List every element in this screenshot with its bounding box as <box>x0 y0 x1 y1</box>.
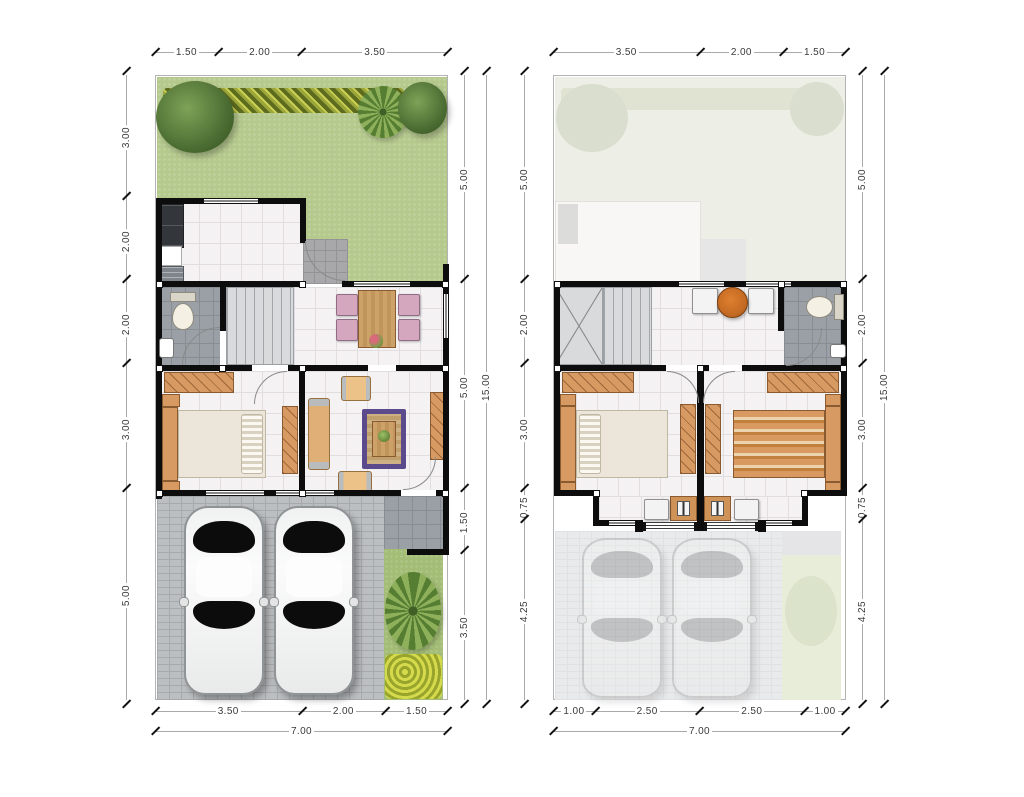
dim-segment: 7.00 <box>553 723 846 739</box>
dim-segment: 5.00 <box>456 75 472 283</box>
column-marker <box>697 365 704 372</box>
wall <box>264 490 276 496</box>
dim-tick <box>460 66 469 75</box>
sofa-long <box>308 398 330 470</box>
dim-tick <box>460 700 469 709</box>
dim-segment: 5.00 <box>456 283 472 491</box>
dim-label: 3.00 <box>857 417 868 442</box>
dim-segment: 3.50 <box>456 554 472 700</box>
column-marker <box>593 490 600 497</box>
bed <box>576 410 668 478</box>
ghost-palm <box>785 576 837 646</box>
wall <box>407 549 449 555</box>
dim-segment: 3.00 <box>854 367 870 492</box>
dim-segment: 2.00 <box>118 200 134 283</box>
wardrobe <box>164 372 234 393</box>
dim-segment: 3.00 <box>516 367 532 492</box>
ghost-car-icon <box>582 538 662 698</box>
ghost-counter <box>558 204 578 244</box>
staircase <box>603 287 652 365</box>
car-mirror <box>179 597 189 608</box>
dim-segment: 5.00 <box>516 75 532 283</box>
desk-chair <box>644 499 669 520</box>
window <box>204 198 258 204</box>
column-marker <box>156 365 163 372</box>
nightstand <box>560 394 576 406</box>
dim-label: 1.50 <box>802 47 827 58</box>
side-porch-tile <box>384 496 443 549</box>
dim-label: 1.00 <box>813 706 838 717</box>
wardrobe <box>767 372 839 393</box>
window <box>766 520 792 526</box>
dim-label: 3.00 <box>519 417 530 442</box>
toilet-icon <box>170 292 196 330</box>
dim-segment: 3.50 <box>301 44 448 60</box>
wall <box>342 281 354 287</box>
armchair <box>341 376 371 401</box>
bed-pillow <box>241 414 263 474</box>
toilet-icon <box>806 294 844 320</box>
ground-bottom-dim-row: 3.50 2.00 1.50 <box>155 703 448 719</box>
toilet-tank <box>834 294 844 320</box>
ghost-porch-tile <box>782 531 841 555</box>
upper-bottom-total-row: 7.00 <box>553 723 846 739</box>
dim-segment: 2.00 <box>854 283 870 366</box>
balcony-post <box>758 520 766 532</box>
dim-tick <box>880 700 889 709</box>
dim-segment: 1.00 <box>553 703 595 719</box>
sliding-glass-door <box>206 490 264 496</box>
dim-segment: 1.50 <box>385 703 448 719</box>
wall <box>697 365 704 531</box>
dresser <box>680 404 696 474</box>
dim-segment: 2.00 <box>516 283 532 366</box>
nightstand <box>825 394 841 406</box>
column-marker <box>554 281 561 288</box>
dim-label: 3.00 <box>121 417 132 442</box>
dim-label: 2.00 <box>121 229 132 254</box>
bed-headboard <box>162 407 178 481</box>
dim-segment: 1.00 <box>804 703 846 719</box>
dim-segment: 3.00 <box>118 367 134 492</box>
dim-tick <box>122 66 131 75</box>
column-marker <box>840 365 847 372</box>
wall <box>778 287 784 331</box>
dim-tick <box>482 700 491 709</box>
dim-label: 2.50 <box>739 706 764 717</box>
dim-segment: 2.00 <box>700 44 784 60</box>
dim-label: 4.25 <box>519 599 530 624</box>
bed-pillow <box>579 414 601 474</box>
wall <box>554 365 666 371</box>
ghost-porch <box>701 239 746 284</box>
sitting-chair <box>748 288 774 314</box>
dim-segment: 5.00 <box>118 492 134 700</box>
ghost-tree <box>556 84 628 152</box>
wall <box>792 520 808 526</box>
upper-floor-plan <box>553 75 846 700</box>
dim-label: 2.00 <box>121 312 132 337</box>
bed-headboard <box>825 406 841 482</box>
dining-chair <box>336 319 358 341</box>
dim-label: 4.25 <box>857 599 868 624</box>
wall <box>742 365 847 371</box>
dim-tick <box>443 726 452 735</box>
dim-label: 2.00 <box>247 47 272 58</box>
bed-headboard <box>560 406 576 482</box>
sink-icon <box>830 344 846 358</box>
dim-label: 3.50 <box>614 47 639 58</box>
dim-tick <box>520 66 529 75</box>
dim-tick <box>549 47 558 56</box>
dim-segment: 2.50 <box>699 703 804 719</box>
round-table <box>717 287 748 318</box>
sink-icon <box>159 338 174 358</box>
column-marker <box>299 365 306 372</box>
dim-label: 1.50 <box>459 510 470 535</box>
dim-tick <box>443 706 452 715</box>
balcony-railing <box>643 522 697 531</box>
dim-segment: 7.00 <box>155 723 448 739</box>
toilet-bowl <box>172 303 194 330</box>
kitchen-sink-icon <box>160 246 182 266</box>
column-marker <box>442 281 449 288</box>
wall <box>156 198 204 204</box>
wall <box>220 287 226 331</box>
bed <box>733 410 825 478</box>
dim-label: 5.00 <box>459 375 470 400</box>
dim-label: 5.00 <box>121 583 132 608</box>
upper-top-dim-row: 3.50 2.00 1.50 <box>553 44 846 60</box>
dim-segment: 15.00 <box>478 75 494 700</box>
window <box>443 294 449 338</box>
window <box>354 281 410 287</box>
dim-label: 7.00 <box>289 726 314 737</box>
dining-chair <box>398 294 420 316</box>
wall <box>299 365 305 496</box>
wall <box>334 490 401 496</box>
desk-chair <box>734 499 759 520</box>
car-rear-glass <box>193 521 255 553</box>
wall <box>554 281 560 496</box>
toilet-bowl <box>806 296 833 318</box>
dim-label: 2.00 <box>519 312 530 337</box>
dim-tick <box>549 726 558 735</box>
ground-top-dim-row: 1.50 2.00 3.50 <box>155 44 448 60</box>
wall <box>805 490 847 496</box>
column-marker <box>299 490 306 497</box>
dim-label: 3.50 <box>362 47 387 58</box>
bed <box>178 410 266 478</box>
dim-tick <box>880 66 889 75</box>
wall <box>554 490 596 496</box>
dim-segment: 2.00 <box>218 44 302 60</box>
shrub-icon <box>385 654 442 699</box>
column-marker <box>219 365 226 372</box>
dim-tick <box>858 66 867 75</box>
dresser <box>282 406 298 474</box>
wall <box>724 281 746 287</box>
dim-segment: 3.50 <box>155 703 302 719</box>
palm-tree-icon <box>385 572 441 650</box>
car-mirror <box>349 597 359 608</box>
dim-segment: 4.25 <box>516 523 532 700</box>
dim-tick <box>841 47 850 56</box>
wall <box>554 281 679 287</box>
dining-chair <box>336 294 358 316</box>
dim-label: 5.00 <box>857 167 868 192</box>
column-marker <box>442 365 449 372</box>
dim-label: 2.50 <box>635 706 660 717</box>
wall <box>156 281 306 287</box>
dim-label: 2.00 <box>857 312 868 337</box>
column-marker <box>299 281 306 288</box>
dim-label: 2.00 <box>331 706 356 717</box>
dresser <box>705 404 721 474</box>
sitting-chair <box>692 288 718 314</box>
wall <box>300 198 306 243</box>
wall <box>443 496 449 555</box>
staircase <box>226 287 294 365</box>
dim-tick <box>122 700 131 709</box>
dim-label: 3.50 <box>216 706 241 717</box>
ground-right-dim-col: 5.00 5.00 1.50 3.50 <box>456 75 472 700</box>
dim-segment: 2.50 <box>595 703 700 719</box>
car-mirror <box>269 597 279 608</box>
car-roof <box>196 557 252 597</box>
column-marker <box>442 490 449 497</box>
dim-segment: 3.50 <box>553 44 700 60</box>
ghost-car-icon <box>672 538 752 698</box>
toilet-tank <box>170 292 196 302</box>
dim-label: 3.00 <box>121 125 132 150</box>
dim-tick <box>151 706 160 715</box>
car-mirror <box>259 597 269 608</box>
desk <box>670 496 697 521</box>
dim-tick <box>520 700 529 709</box>
ground-bottom-total-row: 7.00 <box>155 723 448 739</box>
ground-right-total-col: 15.00 <box>478 75 494 700</box>
dim-label: 1.50 <box>404 706 429 717</box>
dim-segment: 2.00 <box>302 703 386 719</box>
dim-tick <box>841 726 850 735</box>
dim-label: 7.00 <box>687 726 712 737</box>
dim-tick <box>151 726 160 735</box>
dim-label: 15.00 <box>879 372 890 403</box>
window <box>609 520 635 526</box>
upper-right-dim-col: 5.00 2.00 3.00 0.75 4.25 <box>854 75 870 700</box>
dim-label: 5.00 <box>459 167 470 192</box>
dining-chair <box>398 319 420 341</box>
balcony-railing <box>704 522 758 531</box>
ground-left-dim-col: 3.00 2.00 2.00 3.00 5.00 <box>118 75 134 700</box>
window <box>679 281 724 287</box>
desk <box>704 496 731 521</box>
dim-segment: 15.00 <box>876 75 892 700</box>
dim-label: 3.50 <box>459 615 470 640</box>
column-marker <box>156 281 163 288</box>
car-icon <box>184 506 264 695</box>
dim-tick <box>151 47 160 56</box>
wardrobe <box>562 372 634 393</box>
dim-label: 1.50 <box>174 47 199 58</box>
column-marker <box>554 365 561 372</box>
dim-label: 1.00 <box>561 706 586 717</box>
wall <box>593 520 609 526</box>
column-marker <box>840 281 847 288</box>
tree-icon <box>398 82 447 134</box>
dim-label: 15.00 <box>481 372 492 403</box>
stair-void <box>555 287 603 365</box>
dim-tick <box>443 47 452 56</box>
kitchen-counter <box>160 204 184 248</box>
dim-segment: 1.50 <box>783 44 846 60</box>
balcony-post <box>635 520 643 532</box>
dim-tick <box>858 700 867 709</box>
dim-segment: 2.00 <box>118 283 134 366</box>
dim-label: 5.00 <box>519 167 530 192</box>
ghost-tree <box>790 82 844 136</box>
upper-left-dim-col: 5.00 2.00 3.00 0.75 4.25 <box>516 75 532 700</box>
floorplan-sheet: 1.50 2.00 3.50 3.00 2.00 2.00 3.00 5.00 … <box>0 0 1024 797</box>
column-marker <box>778 281 785 288</box>
dim-segment: 3.00 <box>118 75 134 200</box>
wall <box>156 490 206 496</box>
dim-tick <box>549 706 558 715</box>
dim-tick <box>841 706 850 715</box>
dim-segment: 1.50 <box>155 44 218 60</box>
upper-right-total-col: 15.00 <box>876 75 892 700</box>
monitor-icon <box>677 501 690 516</box>
wall <box>791 281 847 287</box>
dim-segment: 5.00 <box>854 75 870 283</box>
ground-floor-plan <box>155 75 448 700</box>
car-roof <box>286 557 342 597</box>
dim-segment: 1.50 <box>456 492 472 555</box>
dim-label: 2.00 <box>729 47 754 58</box>
wall <box>258 198 306 204</box>
car-icon <box>274 506 354 695</box>
tree-icon <box>156 81 234 153</box>
flower-vase-icon <box>369 334 383 348</box>
column-marker <box>801 490 808 497</box>
upper-bottom-dim-row: 1.00 2.50 2.50 1.00 <box>553 703 846 719</box>
car-rear-glass <box>283 521 345 553</box>
dim-segment: 4.25 <box>854 523 870 700</box>
wall <box>156 365 252 371</box>
dim-tick <box>482 66 491 75</box>
monitor-icon <box>711 501 724 516</box>
plant-icon <box>378 430 390 442</box>
nightstand <box>162 394 180 407</box>
column-marker <box>156 490 163 497</box>
